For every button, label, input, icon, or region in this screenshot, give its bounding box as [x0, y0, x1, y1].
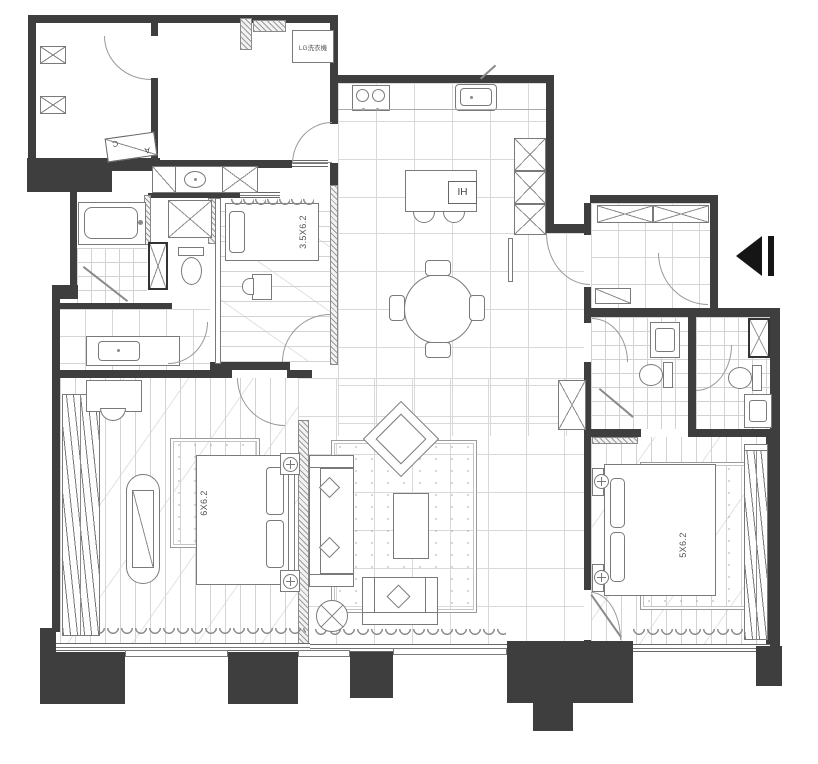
- hatched-wall: [330, 185, 338, 365]
- sofa-arm: [309, 574, 354, 587]
- wall-segment: [28, 15, 36, 162]
- lamp-icon: [594, 570, 609, 585]
- wall-segment: [590, 308, 780, 317]
- sofa-arm: [309, 455, 354, 468]
- bed-size-label: 5X6.2: [678, 510, 692, 580]
- bed-pillow: [266, 520, 284, 568]
- bathtub-basin: [84, 207, 138, 239]
- counter-edge: [338, 109, 546, 110]
- stove-burner: [372, 89, 385, 102]
- thin-partition: [215, 198, 221, 364]
- structural-pier: [756, 646, 782, 686]
- toilet-bowl: [181, 257, 202, 285]
- wall-segment: [287, 370, 312, 378]
- entry-cabinet: [597, 205, 653, 223]
- kitchen-sink-basin: [460, 88, 492, 106]
- structural-pier: [228, 652, 298, 704]
- window-sill: [125, 650, 228, 657]
- duct-shaft: [148, 242, 168, 290]
- sink-drain: [470, 96, 473, 99]
- wall-segment: [52, 370, 232, 378]
- desk: [252, 274, 272, 300]
- window-sill: [393, 648, 507, 655]
- hall-cabinet: [558, 380, 586, 430]
- induction-hob: IH: [448, 181, 477, 204]
- door-swing: [292, 122, 332, 164]
- bed-headboard: [288, 457, 295, 583]
- wardrobe-cap: [744, 444, 768, 451]
- tall-cabinet: [514, 138, 546, 171]
- entry-cabinet: [653, 205, 709, 223]
- wardrobe-rail: [80, 394, 81, 636]
- wall-segment: [28, 15, 160, 23]
- hall-cabinet: [168, 200, 212, 238]
- toilet-tank: [178, 247, 204, 256]
- tall-cabinet: [514, 204, 546, 235]
- wall-segment: [52, 297, 60, 377]
- section-marker-letter: A: [144, 145, 151, 155]
- wall-segment: [546, 83, 554, 233]
- wall-segment: [338, 75, 554, 83]
- accent-chair-seat: [376, 414, 427, 465]
- door-swing: [104, 36, 151, 80]
- mirror-panel: [132, 490, 154, 568]
- dining-chair: [389, 295, 405, 321]
- tub-faucet: [138, 220, 143, 225]
- coffee-table: [393, 493, 429, 559]
- lamp-icon: [283, 574, 298, 589]
- wall-segment: [688, 316, 696, 429]
- structural-pier: [507, 641, 633, 703]
- sink-drain: [194, 178, 197, 181]
- utility-cabinet: [40, 46, 66, 64]
- window: [628, 644, 770, 652]
- bathroom-sink-basin: [655, 328, 675, 352]
- dining-chair: [425, 342, 451, 358]
- curtain: [314, 629, 506, 641]
- hatched-wall: [240, 18, 252, 50]
- utility-cabinet: [40, 96, 66, 114]
- bed-size-label: 6X6.2: [199, 468, 213, 538]
- wall-segment: [70, 192, 77, 292]
- dining-chair: [425, 260, 451, 276]
- wall-segment: [330, 163, 338, 187]
- structural-pier: [533, 703, 573, 731]
- side-table: [316, 600, 348, 632]
- wardrobe: [62, 394, 100, 636]
- wall-segment: [766, 437, 780, 652]
- floor-plan: C A LG洗衣機 3.5X6.2 IH: [0, 0, 818, 764]
- toilet-tank: [663, 362, 673, 388]
- wall-segment: [151, 22, 158, 36]
- wall-segment: [58, 303, 172, 309]
- hatched-wall: [592, 437, 638, 444]
- vanity-faucet: [117, 349, 120, 352]
- section-marker-letter: C: [112, 139, 119, 149]
- bed-size-label: 3.5X6.2: [298, 197, 312, 267]
- wall-segment: [584, 437, 591, 590]
- toilet-bowl: [728, 367, 752, 389]
- washer-appliance: LG洗衣機: [292, 30, 334, 63]
- wardrobe-rail: [756, 450, 757, 640]
- stove-burner: [356, 89, 369, 102]
- structural-pier: [350, 652, 393, 698]
- bed-pillow: [610, 532, 625, 582]
- lamp-icon: [283, 457, 298, 472]
- entry-arrow-bar: [768, 236, 774, 276]
- door-leaf: [292, 162, 332, 163]
- bed-pillow: [610, 478, 625, 528]
- entry-direction-arrow-icon: [736, 236, 762, 276]
- desk-chair: [242, 278, 254, 295]
- wall-segment: [591, 429, 641, 437]
- bed-pillow: [229, 211, 245, 253]
- wall-segment: [584, 203, 591, 235]
- toilet-bowl: [639, 364, 663, 386]
- counter-cabinet: [152, 166, 176, 193]
- duct-shaft: [748, 318, 770, 358]
- bathroom-sink-basin: [749, 400, 767, 422]
- tall-cabinet: [514, 171, 546, 204]
- shoe-bench: [595, 288, 631, 304]
- wall-segment: [584, 287, 591, 323]
- wall-segment: [590, 195, 718, 203]
- lamp-icon: [594, 474, 609, 489]
- dining-chair: [469, 295, 485, 321]
- structural-pier: [40, 652, 125, 704]
- armchair-back: [362, 612, 438, 625]
- wall-segment: [688, 429, 780, 437]
- slim-cabinet: [508, 238, 513, 282]
- shower-floor: [77, 248, 147, 303]
- wall-segment: [710, 195, 718, 317]
- dining-table: [404, 274, 474, 344]
- window-sill: [298, 650, 350, 657]
- wall-segment: [210, 362, 290, 370]
- hatched-wall: [253, 20, 286, 32]
- wall-segment: [27, 158, 112, 192]
- wall-segment: [52, 377, 60, 632]
- curtain: [64, 628, 306, 640]
- toilet-tank: [752, 365, 762, 391]
- counter-cabinet: [222, 166, 258, 193]
